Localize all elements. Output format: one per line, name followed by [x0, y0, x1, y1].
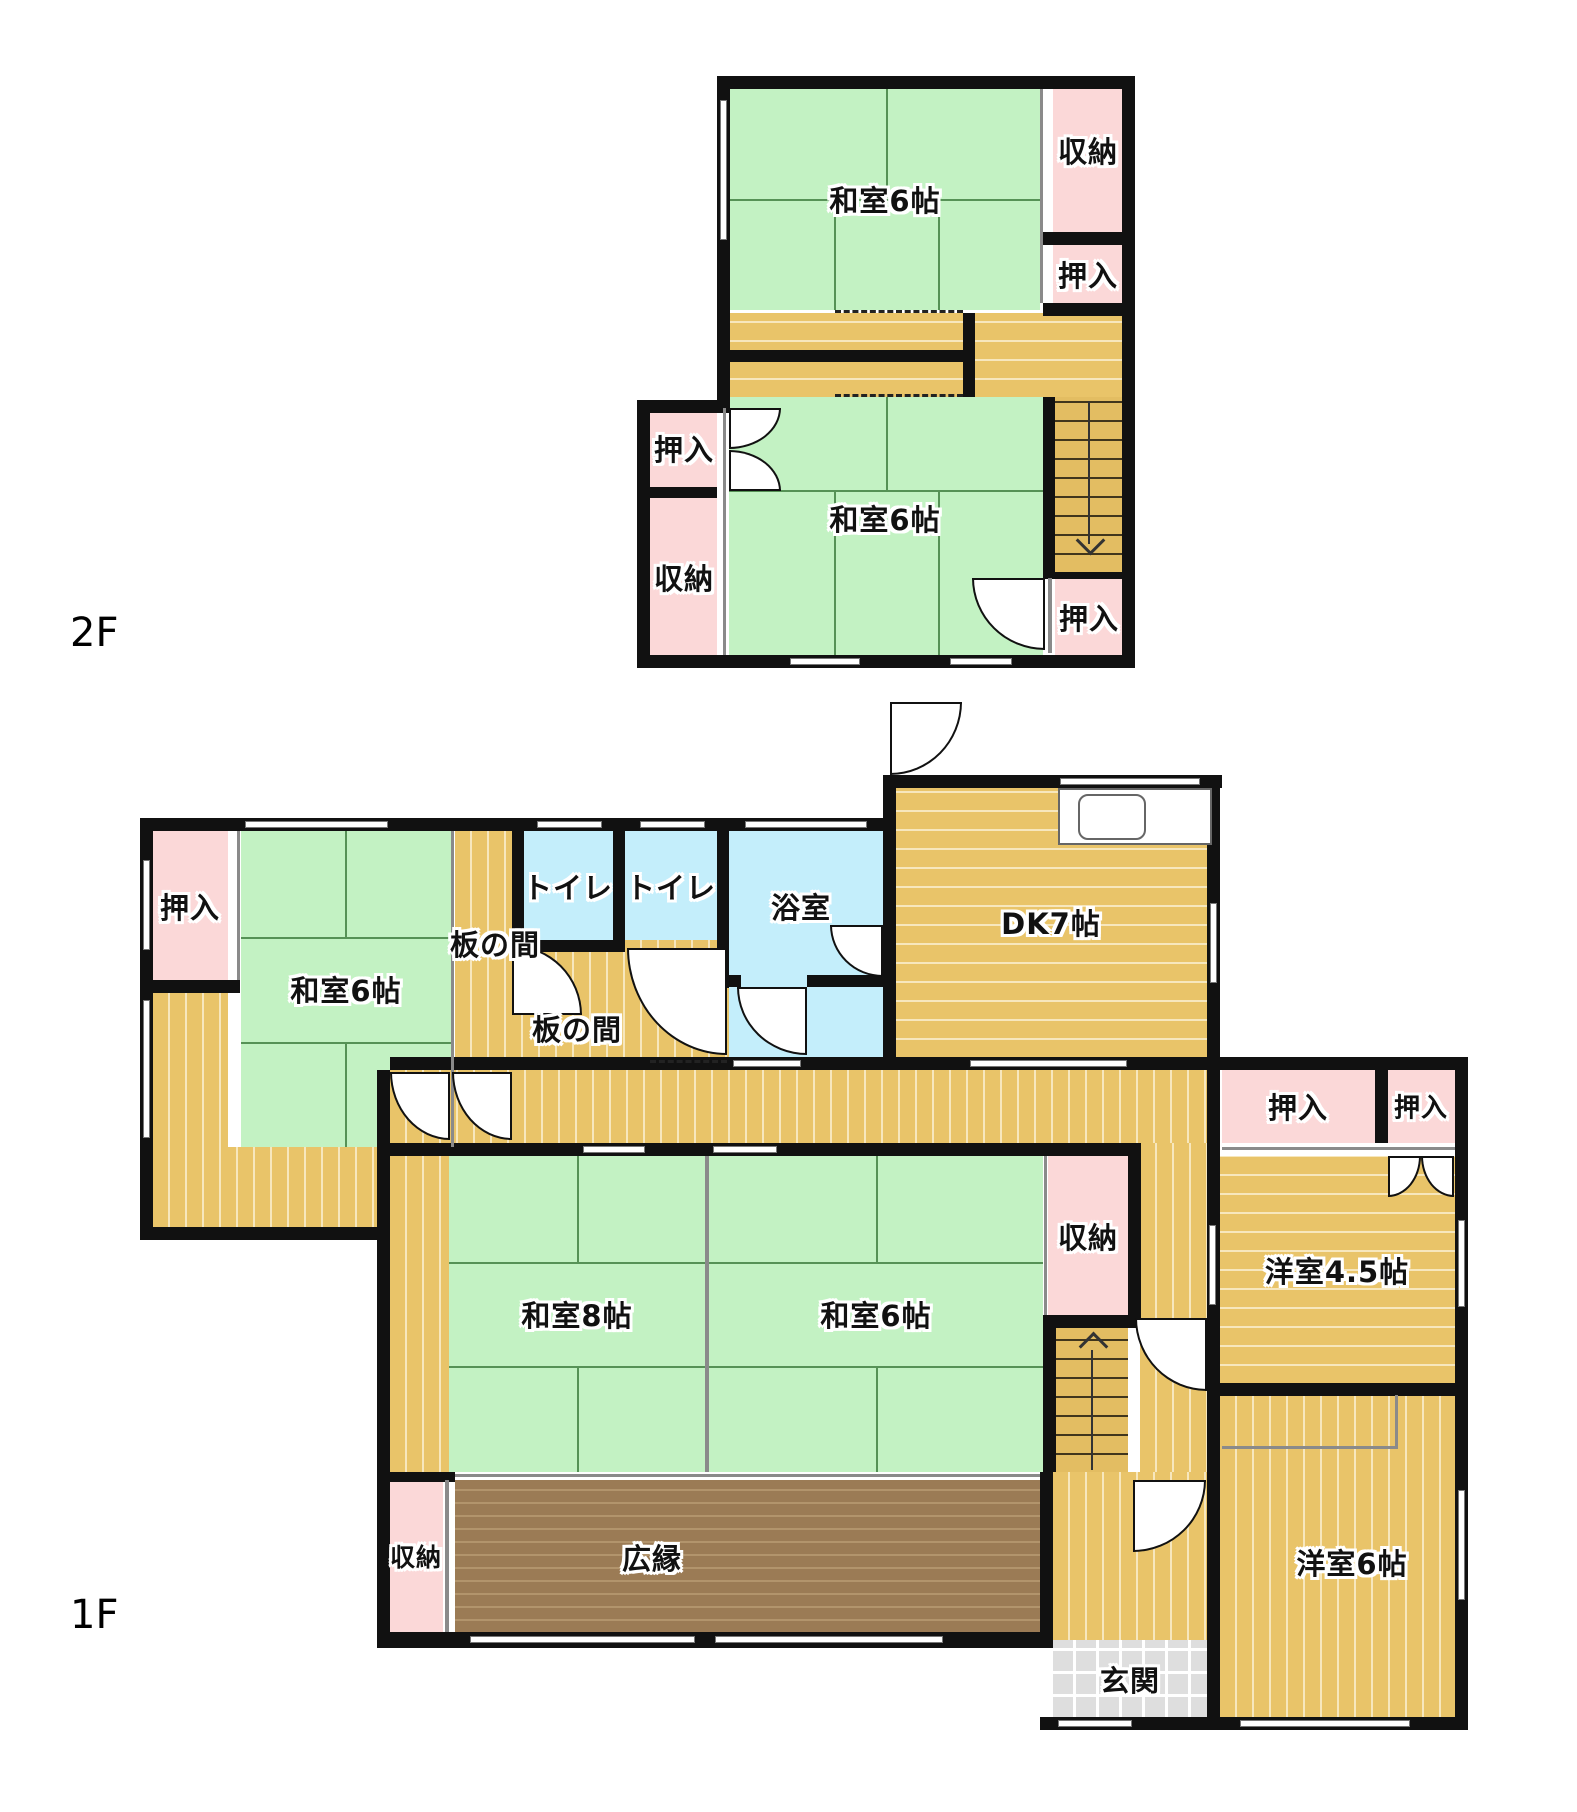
partition-line — [1048, 578, 1052, 653]
wall-segment — [140, 1227, 390, 1240]
kitchen-sink — [1078, 794, 1146, 840]
window-mark — [733, 1060, 801, 1067]
wall-segment — [963, 313, 975, 397]
window-mark — [1458, 1220, 1465, 1307]
wall-segment — [1375, 1070, 1388, 1143]
tatami-line — [886, 397, 888, 490]
door-arc — [890, 702, 962, 775]
label-toilet-1: トイレ — [523, 865, 613, 907]
wall-segment — [140, 980, 240, 993]
label-toilet-2: トイレ — [626, 865, 716, 907]
label-oshiire-2f-right-bottom: 押入 — [1059, 596, 1119, 638]
sliding-rail-mark — [650, 1060, 727, 1063]
wall-segment — [1040, 1472, 1053, 1648]
stairs-center-line — [1091, 1350, 1093, 1470]
label-washitsu8-1f: 和室8帖 — [521, 1293, 632, 1335]
label-oshiire-2f-right-top: 押入 — [1058, 253, 1118, 295]
room-engawa-strip-left — [153, 993, 228, 1147]
window-mark — [1240, 1720, 1410, 1727]
label-oshiire-2f-left: 押入 — [654, 427, 714, 469]
partition-line — [451, 831, 454, 1147]
tatami-line — [876, 1156, 878, 1262]
wall-segment — [729, 350, 963, 362]
wall-segment — [643, 487, 717, 498]
partition-line — [1395, 1395, 1398, 1448]
sliding-rail-mark — [835, 310, 963, 313]
window-mark — [583, 1146, 645, 1153]
window-mark — [1060, 778, 1200, 785]
wall-segment — [1207, 1383, 1220, 1730]
partition-line — [1044, 1156, 1047, 1315]
window-mark — [950, 658, 1012, 665]
wall-segment — [1043, 397, 1055, 579]
wall-segment — [1207, 1383, 1468, 1396]
label-washitsu6-2f-lower: 和室6帖 — [829, 497, 940, 539]
wall-segment — [1043, 303, 1135, 316]
label-yoshitsu45: 洋室4.5帖 — [1265, 1249, 1409, 1291]
window-mark — [720, 100, 727, 240]
wall-segment — [883, 775, 896, 1070]
wall-segment — [377, 1472, 455, 1482]
window-mark — [245, 821, 388, 828]
room-hiroen — [455, 1480, 1040, 1632]
label-shuno-1f-bottomleft: 収納 — [390, 1538, 442, 1574]
wall-segment — [613, 818, 625, 948]
window-mark — [970, 1060, 1127, 1067]
window-mark — [640, 821, 705, 828]
room-veranda-bottom-left — [153, 1147, 390, 1227]
label-shuno-1f-center: 収納 — [1058, 1215, 1118, 1257]
wall-segment — [637, 655, 1135, 668]
label-bathroom: 浴室 — [771, 885, 831, 927]
stairs-center-line — [1088, 401, 1090, 544]
wall-segment — [637, 400, 650, 668]
wall-segment — [1043, 232, 1135, 245]
label-yoshitsu6: 洋室6帖 — [1296, 1541, 1407, 1583]
wall-segment — [725, 975, 741, 987]
tatami-line — [577, 1156, 579, 1262]
partition-line — [1040, 89, 1043, 303]
partition-line — [723, 408, 726, 655]
partition-line — [237, 831, 240, 980]
wall-segment — [637, 400, 729, 413]
tatami-line — [577, 1366, 579, 1472]
wall-segment — [1043, 1315, 1056, 1472]
label-dk7: DK7帖 — [1001, 901, 1101, 943]
label-washitsu6-1f-topleft: 和室6帖 — [290, 968, 401, 1010]
window-mark — [1058, 1720, 1132, 1727]
floor-plan-canvas: 2F 1F 和室6帖収納押入和室6帖押入収納押入押入和室6帖板の間トイレトイレ板… — [0, 0, 1577, 1812]
partition-line — [1222, 1446, 1398, 1449]
window-mark — [1210, 903, 1217, 983]
label-hiroen: 広縁 — [622, 1536, 682, 1578]
window-mark — [745, 821, 867, 828]
tatami-line — [241, 937, 451, 939]
window-mark — [143, 860, 150, 950]
window-mark — [537, 821, 602, 828]
label-oshiire-1f-wide: 押入 — [1268, 1085, 1328, 1127]
tatami-line — [709, 1262, 1043, 1264]
window-mark — [1458, 1490, 1465, 1600]
tatami-line — [876, 1366, 878, 1472]
tatami-line — [345, 831, 347, 937]
wall-segment — [377, 1143, 390, 1648]
tatami-line — [345, 1042, 347, 1147]
partition-line — [455, 1474, 1040, 1477]
partition-line — [445, 1480, 449, 1632]
window-mark — [143, 1000, 150, 1138]
label-itanoma-lower: 板の間 — [532, 1007, 622, 1049]
window-mark — [715, 1636, 943, 1643]
tatami-line — [449, 1262, 705, 1264]
label-itanoma-strip: 板の間 — [450, 922, 540, 964]
label-shuno-2f-left: 収納 — [654, 556, 714, 598]
partition-line — [1222, 1147, 1455, 1150]
window-mark — [470, 1636, 695, 1643]
sliding-rail-mark — [835, 394, 963, 397]
label-shuno-2f-right: 収納 — [1058, 129, 1118, 171]
wall-segment — [1043, 1315, 1140, 1328]
floor-label-2f: 2F — [70, 610, 118, 656]
wall-segment — [807, 975, 883, 987]
wall-segment — [1122, 76, 1135, 668]
label-washitsu6-2f-upper: 和室6帖 — [829, 178, 940, 220]
window-mark — [1209, 1225, 1216, 1305]
label-oshiire-1f-topleft: 押入 — [160, 885, 220, 927]
wall-segment — [1207, 1057, 1468, 1070]
partition-line — [705, 1156, 709, 1472]
floor-label-1f: 1F — [70, 1592, 118, 1638]
room-corridor-1f — [390, 1070, 1207, 1143]
room-hallway-vertical — [1140, 1143, 1207, 1480]
wall-segment — [1043, 572, 1135, 579]
label-washitsu6-1f-center: 和室6帖 — [820, 1293, 931, 1335]
wall-segment — [717, 76, 1135, 89]
room-engawa-strip-8 — [390, 1156, 449, 1472]
label-genkan: 玄関 — [1100, 1658, 1160, 1700]
window-mark — [790, 658, 860, 665]
wall-segment — [1128, 1156, 1141, 1328]
window-mark — [713, 1146, 777, 1153]
label-oshiire-1f-small: 押入 — [1394, 1088, 1448, 1125]
